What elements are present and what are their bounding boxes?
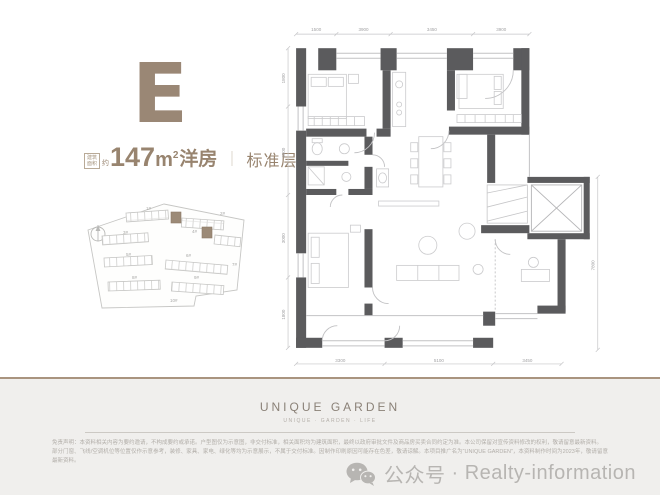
dim-label: 3900 [496, 27, 507, 32]
dim-label: 1800 [281, 309, 286, 320]
building-label: 8# [132, 275, 138, 280]
unit-info-row: 建筑 面积 约 147 m2 洋房 ｜ 标准层 [84, 144, 297, 171]
building-label: 5# [126, 252, 132, 257]
building-label: 1# [146, 206, 152, 211]
dim-label: 1800 [281, 73, 286, 84]
dim-label: 3450 [427, 27, 438, 32]
dim-label: 3450 [522, 358, 533, 363]
building-label: 10# [170, 298, 178, 303]
building-label: 9# [194, 275, 200, 280]
area-value: 147 [110, 144, 155, 171]
duct-room [487, 185, 527, 223]
dim-label: 3000 [281, 233, 286, 244]
footer-divider [85, 432, 575, 433]
building-label: 4# [192, 229, 198, 234]
area-unit: m [155, 149, 173, 171]
wechat-label: 公众号 [384, 459, 446, 488]
dim-label: 1500 [311, 27, 322, 32]
building-label: 3# [123, 230, 129, 235]
plan-furniture [308, 72, 549, 287]
poster: E 建筑 面积 约 147 m2 洋房 ｜ 标准层 [0, 0, 660, 495]
area-label-line2: 面积 [87, 161, 97, 167]
unit-letter: E [60, 54, 260, 136]
dim-label: 4500 [281, 147, 286, 158]
floor-plan: 1500 3900 3450 3900 1800 4500 3000 1800 … [280, 18, 642, 376]
info-divider: ｜ [224, 148, 239, 169]
brand-tagline: UNIQUE · GARDEN · LIFE [0, 418, 660, 424]
building-label: 7# [232, 262, 238, 267]
area-type-label: 洋房 [179, 150, 217, 171]
elevator-shaft [531, 185, 581, 231]
brand-wordmark: UNIQUE GARDEN [0, 400, 660, 414]
approx-label: 约 [102, 158, 109, 171]
building-label: 6# [186, 253, 192, 258]
site-plan: 1# 2# 3# 4# 5# 6# 7# 8# 9# 10# [74, 194, 252, 316]
wechat-account-name: Realty-information [465, 462, 636, 485]
plan-doors [322, 70, 513, 340]
dim-label: 5100 [434, 358, 445, 363]
area-label-box: 建筑 面积 [84, 153, 100, 169]
dim-label: 7800 [591, 260, 596, 271]
area-superscript: 2 [173, 150, 179, 161]
wechat-separator: · [452, 462, 459, 485]
footer: UNIQUE GARDEN UNIQUE · GARDEN · LIFE 免责声… [0, 379, 660, 495]
plan-dimensions: 1500 3900 3450 3900 1800 4500 3000 1800 … [281, 27, 600, 366]
dim-label: 3300 [335, 358, 346, 363]
wechat-account-row: 公众号 · Realty-information [346, 459, 636, 488]
dim-label: 3900 [358, 27, 369, 32]
building-label: 2# [220, 211, 226, 216]
disclaimer-line-1: 免责声明：本资料相关内容为要约邀请，不构成要约或承诺。户型图仅为示意图，非交付标… [52, 439, 608, 448]
wechat-icon [346, 462, 376, 486]
